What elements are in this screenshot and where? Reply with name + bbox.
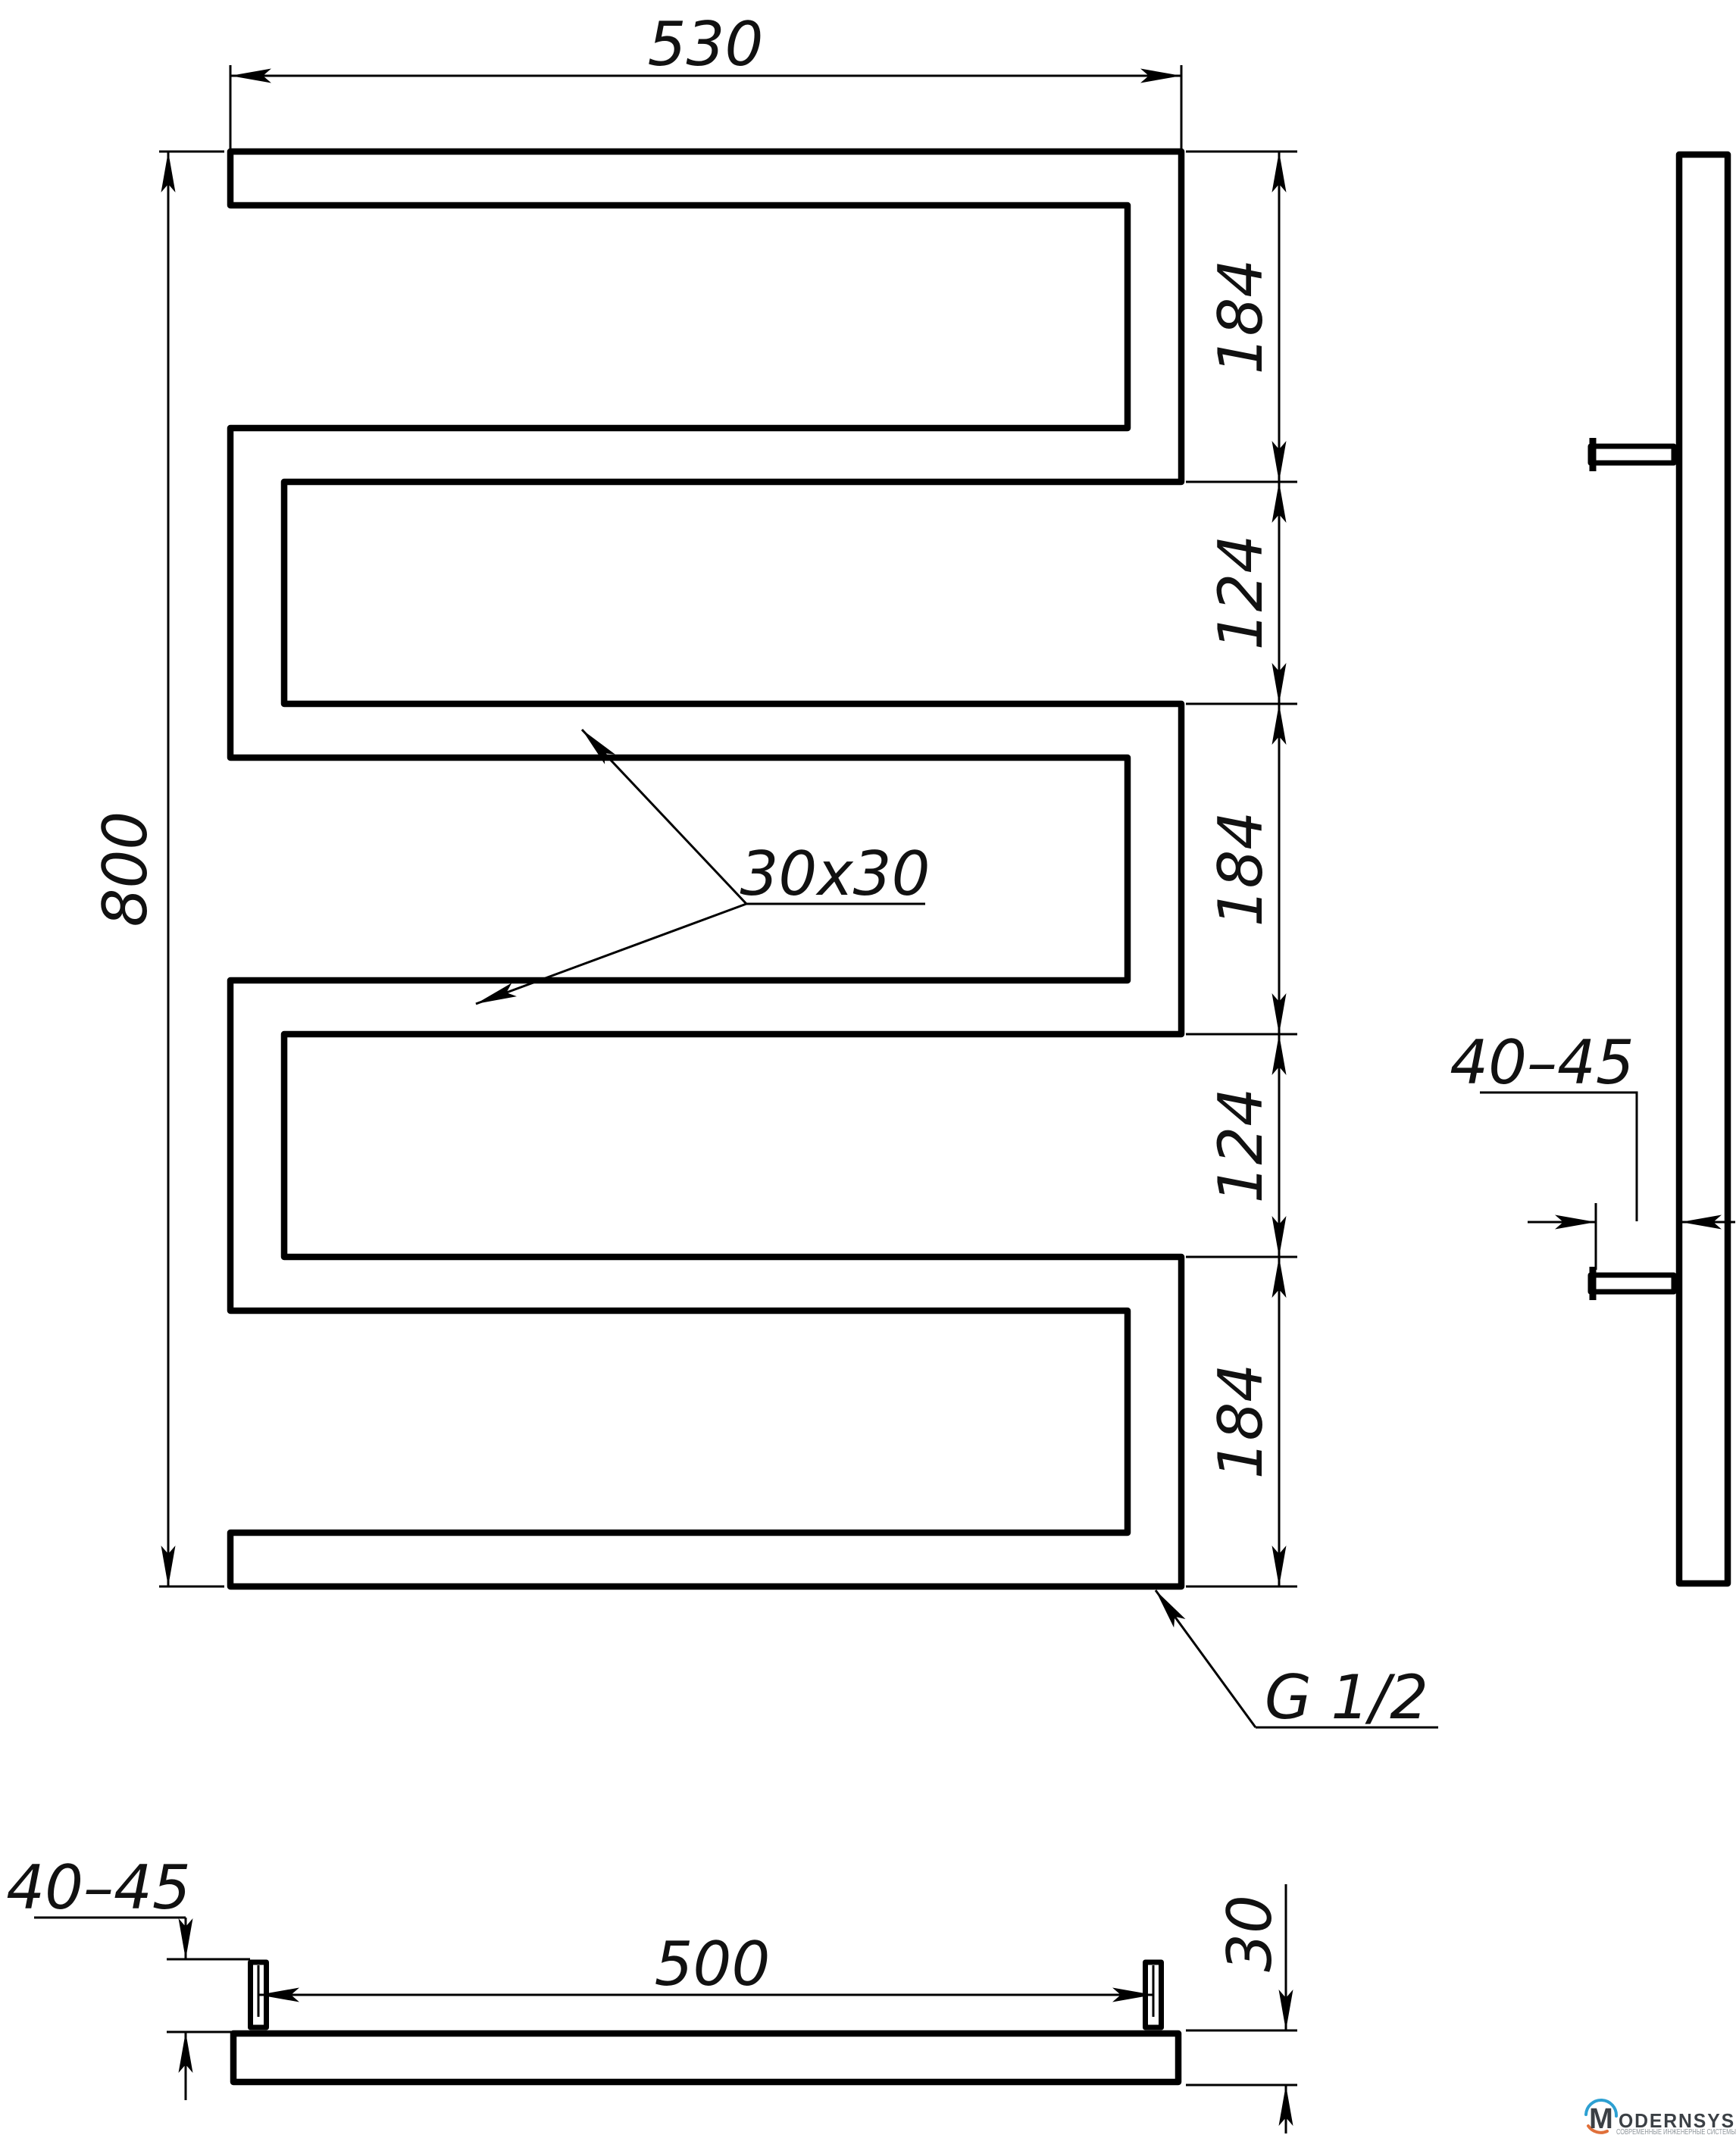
dimension-label-124-lower: 124 [1206, 1088, 1276, 1204]
tube-profile-callout: 30x30 [476, 730, 930, 1004]
dimension-label-124-upper: 124 [1206, 535, 1276, 651]
dimension-label-800: 800 [90, 811, 161, 927]
dimension-label-40-45-bottom: 40–45 [6, 1852, 191, 1923]
tube-bottom-profile [233, 2033, 1178, 2082]
tube-depth-dimension: 30 [1186, 1884, 1297, 2133]
bracket-height-dimension: 40–45 [6, 1852, 250, 2100]
leader-line [1156, 1590, 1256, 1727]
logo-tagline: СОВРЕМЕННЫЕ ИНЖЕНЕРНЫЕ СИСТЕМЫ [1616, 2127, 1736, 2135]
bracket-spacing-dimension: 500 [258, 1929, 1153, 1999]
segment-dimension-chain: 184 124 184 124 184 [1186, 152, 1297, 1586]
towel-radiator-drawing: 530 800 184 124 184 124 184 [0, 0, 1736, 2135]
dimension-label-184-bottom: 184 [1206, 1364, 1276, 1480]
tube-side-profile [1679, 155, 1728, 1583]
dimension-label-30: 30 [1215, 1895, 1285, 1972]
dimension-label-184-top: 184 [1206, 259, 1276, 375]
bottom-view: 40–45 500 30 [6, 1852, 1297, 2133]
lower-wall-bracket [1591, 1267, 1674, 1300]
drawing-sheet: 530 800 184 124 184 124 184 [0, 0, 1736, 2135]
leader-line [1480, 1093, 1637, 1221]
height-dimension-800: 800 [90, 152, 224, 1586]
thread-label: G 1/2 [1265, 1662, 1428, 1733]
width-dimension-530: 530 [230, 9, 1181, 148]
thread-callout: G 1/2 [1156, 1590, 1438, 1733]
tube-profile-label: 30x30 [740, 839, 931, 909]
dimension-label-40-45: 40–45 [1450, 1027, 1634, 1098]
bracket-plate [1591, 1275, 1674, 1292]
front-view: 530 800 184 124 184 124 184 [90, 9, 1438, 1733]
serpentine-tube-outline [230, 152, 1181, 1586]
dimension-label-184-middle: 184 [1206, 811, 1276, 927]
dimension-label-500: 500 [655, 1929, 771, 1999]
side-view: 40–45 [1450, 155, 1735, 1583]
upper-wall-bracket [1591, 438, 1674, 471]
dimension-label-530: 530 [648, 9, 764, 80]
bracket-plate [1591, 446, 1674, 463]
brand-logo: M ODERNSYS СОВРЕМЕННЫЕ ИНЖЕНЕРНЫЕ СИСТЕМ… [1586, 2100, 1736, 2135]
logo-monogram: M [1589, 2103, 1613, 2135]
